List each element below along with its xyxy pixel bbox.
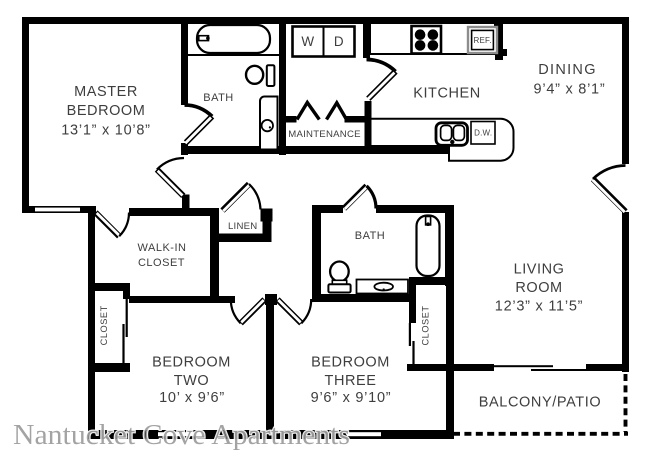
svg-text:W: W [301, 34, 314, 49]
svg-text:KITCHEN: KITCHEN [413, 86, 481, 102]
svg-text:THREE: THREE [325, 373, 377, 389]
svg-text:DINING: DINING [538, 62, 597, 78]
svg-text:TWO: TWO [174, 373, 209, 389]
svg-text:BALCONY/PATIO: BALCONY/PATIO [479, 395, 601, 411]
svg-text:WALK-IN: WALK-IN [138, 242, 187, 254]
svg-text:13’1” x 10’8”: 13’1” x 10’8” [61, 123, 151, 139]
svg-text:CLOSET: CLOSET [138, 257, 185, 269]
svg-text:9’6” x 9’10”: 9’6” x 9’10” [311, 390, 392, 406]
svg-text:MASTER: MASTER [74, 84, 138, 100]
svg-text:REF.: REF. [474, 36, 492, 45]
svg-text:9’4” x 8’1”: 9’4” x 8’1” [534, 82, 606, 98]
svg-text:D: D [334, 34, 344, 49]
svg-text:10’ x 9’6”: 10’ x 9’6” [159, 390, 225, 406]
svg-text:BEDROOM: BEDROOM [311, 355, 390, 371]
svg-text:BATH: BATH [203, 92, 234, 104]
svg-text:Nantucket Cove Apartments: Nantucket Cove Apartments [13, 419, 350, 451]
svg-text:MAINTENANCE: MAINTENANCE [288, 129, 361, 140]
svg-text:BEDROOM: BEDROOM [67, 103, 146, 119]
svg-text:CLOSET: CLOSET [99, 305, 109, 345]
svg-text:BEDROOM: BEDROOM [152, 355, 231, 371]
svg-text:D.W.: D.W. [474, 128, 492, 137]
svg-text:12’3” x 11’5”: 12’3” x 11’5” [495, 299, 583, 315]
svg-text:CLOSET: CLOSET [421, 305, 431, 345]
svg-text:ROOM: ROOM [515, 280, 562, 296]
svg-text:BATH: BATH [355, 230, 386, 242]
svg-text:LIVING: LIVING [514, 262, 565, 278]
svg-text:LINEN: LINEN [228, 221, 258, 232]
